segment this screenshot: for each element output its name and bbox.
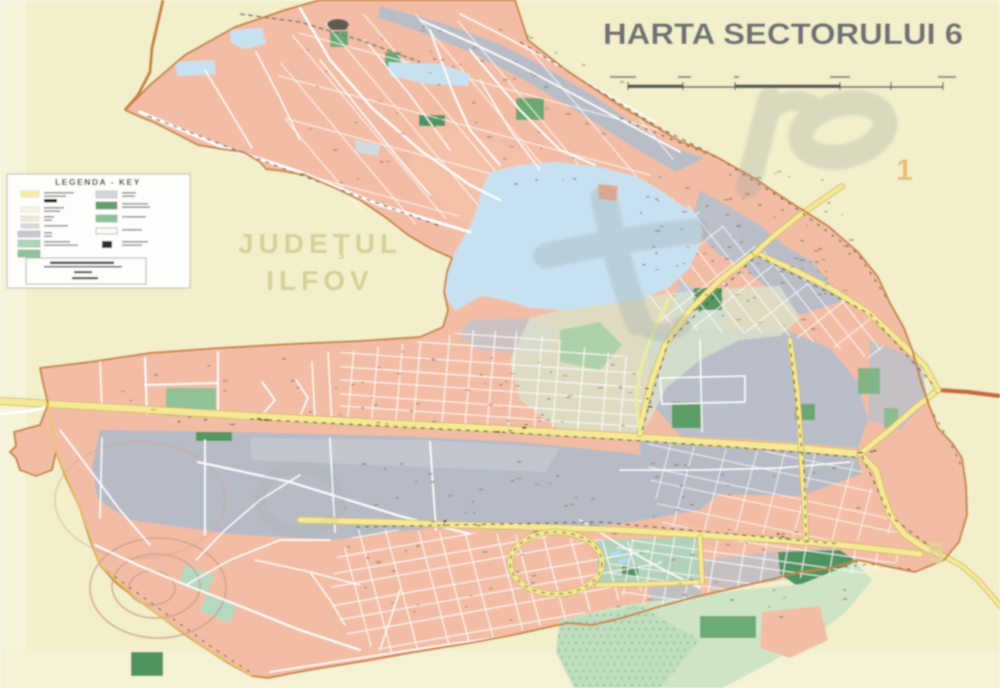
svg-text:1: 1 — [896, 154, 913, 187]
svg-text:JUDEŢUL: JUDEŢUL — [238, 228, 402, 259]
svg-text:5: 5 — [928, 537, 945, 570]
svg-text:HARTA SECTORULUI 6: HARTA SECTORULUI 6 — [603, 18, 963, 51]
svg-text:LEGENDA - KEY: LEGENDA - KEY — [55, 177, 141, 187]
svg-text:ILFOV: ILFOV — [266, 265, 373, 296]
